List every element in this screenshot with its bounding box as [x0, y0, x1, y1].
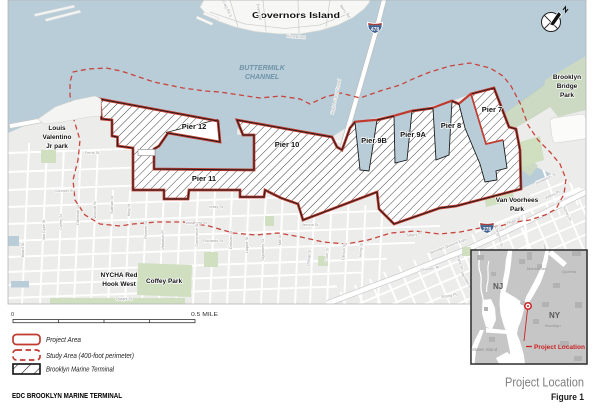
svg-text:Bridge: Bridge — [557, 83, 578, 90]
svg-text:CHANNEL: CHANNEL — [245, 74, 279, 81]
svg-text:Luquer St: Luquer St — [245, 236, 249, 253]
svg-text:NJ: NJ — [493, 282, 503, 291]
svg-text:Pier 9B: Pier 9B — [361, 136, 387, 145]
svg-text:Mill St: Mill St — [278, 234, 282, 245]
svg-text:Figure 1: Figure 1 — [551, 392, 584, 402]
svg-text:King St: King St — [127, 203, 131, 216]
svg-text:Manhattan: Manhattan — [527, 266, 546, 271]
svg-text:Dikeman St: Dikeman St — [76, 204, 80, 225]
svg-text:Project Location: Project Location — [534, 344, 585, 351]
svg-text:Hook West: Hook West — [102, 281, 136, 288]
svg-text:Commerce St: Commerce St — [195, 222, 199, 246]
svg-text:NYCHA Red: NYCHA Red — [101, 272, 138, 279]
svg-text:Valentino: Valentino — [43, 134, 72, 141]
svg-text:0: 0 — [11, 312, 14, 318]
svg-text:0.5 MILE: 0.5 MILE — [191, 312, 218, 318]
svg-text:Park: Park — [510, 206, 524, 213]
svg-text:Pier 10: Pier 10 — [275, 140, 300, 149]
svg-text:EDC BROOKLYN MARINE TERMINAL: EDC BROOKLYN MARINE TERMINAL — [12, 391, 123, 400]
svg-text:278: 278 — [483, 227, 492, 233]
svg-text:Ferris St: Ferris St — [85, 151, 100, 155]
svg-text:Coffey St: Coffey St — [59, 213, 63, 229]
svg-text:Project Area: Project Area — [46, 337, 81, 344]
svg-text:Sullivan St: Sullivan St — [110, 195, 114, 214]
svg-text:Beard St: Beard St — [21, 242, 25, 258]
svg-text:Imlay St: Imlay St — [209, 205, 224, 209]
svg-text:Park: Park — [560, 92, 574, 99]
svg-text:Sigourney St: Sigourney St — [261, 238, 265, 261]
svg-text:Brooklyn: Brooklyn — [545, 323, 561, 328]
svg-text:Van Dyke St: Van Dyke St — [42, 219, 46, 241]
svg-text:Pier 9A: Pier 9A — [400, 130, 426, 139]
svg-text:Richards St: Richards St — [203, 239, 224, 243]
svg-text:Coffey Park: Coffey Park — [146, 278, 183, 285]
svg-text:478: 478 — [371, 27, 380, 33]
svg-text:Pier 11: Pier 11 — [192, 174, 216, 183]
svg-text:Verona St: Verona St — [302, 223, 320, 227]
svg-text:Pier 7: Pier 7 — [482, 105, 502, 114]
svg-text:Delavan St: Delavan St — [229, 230, 233, 250]
svg-text:Study Area (400-foot perimeter: Study Area (400-foot perimeter) — [46, 353, 134, 360]
svg-text:Brooklyn: Brooklyn — [553, 74, 581, 81]
svg-text:Visitation Pl: Visitation Pl — [161, 230, 165, 250]
svg-text:Wolcott St: Wolcott St — [93, 200, 97, 218]
svg-text:Pioneer St: Pioneer St — [144, 220, 148, 239]
svg-text:Pier 8: Pier 8 — [441, 121, 461, 130]
svg-text:Louis: Louis — [48, 125, 66, 132]
svg-text:Van Voorhees: Van Voorhees — [496, 197, 539, 204]
svg-text:Project Location: Project Location — [505, 376, 584, 390]
svg-text:Queens: Queens — [562, 269, 576, 274]
svg-text:Governors Island: Governors Island — [252, 10, 340, 20]
svg-text:Conover St: Conover St — [55, 189, 75, 193]
svg-text:Brooklyn Marine Terminal: Brooklyn Marine Terminal — [46, 367, 114, 374]
svg-text:BUTTERMILK: BUTTERMILK — [239, 65, 285, 72]
svg-text:Jr park: Jr park — [46, 143, 68, 150]
svg-text:Dwight St: Dwight St — [116, 297, 133, 301]
svg-text:NY: NY — [549, 311, 561, 320]
svg-text:Pier 12: Pier 12 — [182, 122, 207, 131]
svg-text:Staten Island: Staten Island — [472, 347, 498, 352]
